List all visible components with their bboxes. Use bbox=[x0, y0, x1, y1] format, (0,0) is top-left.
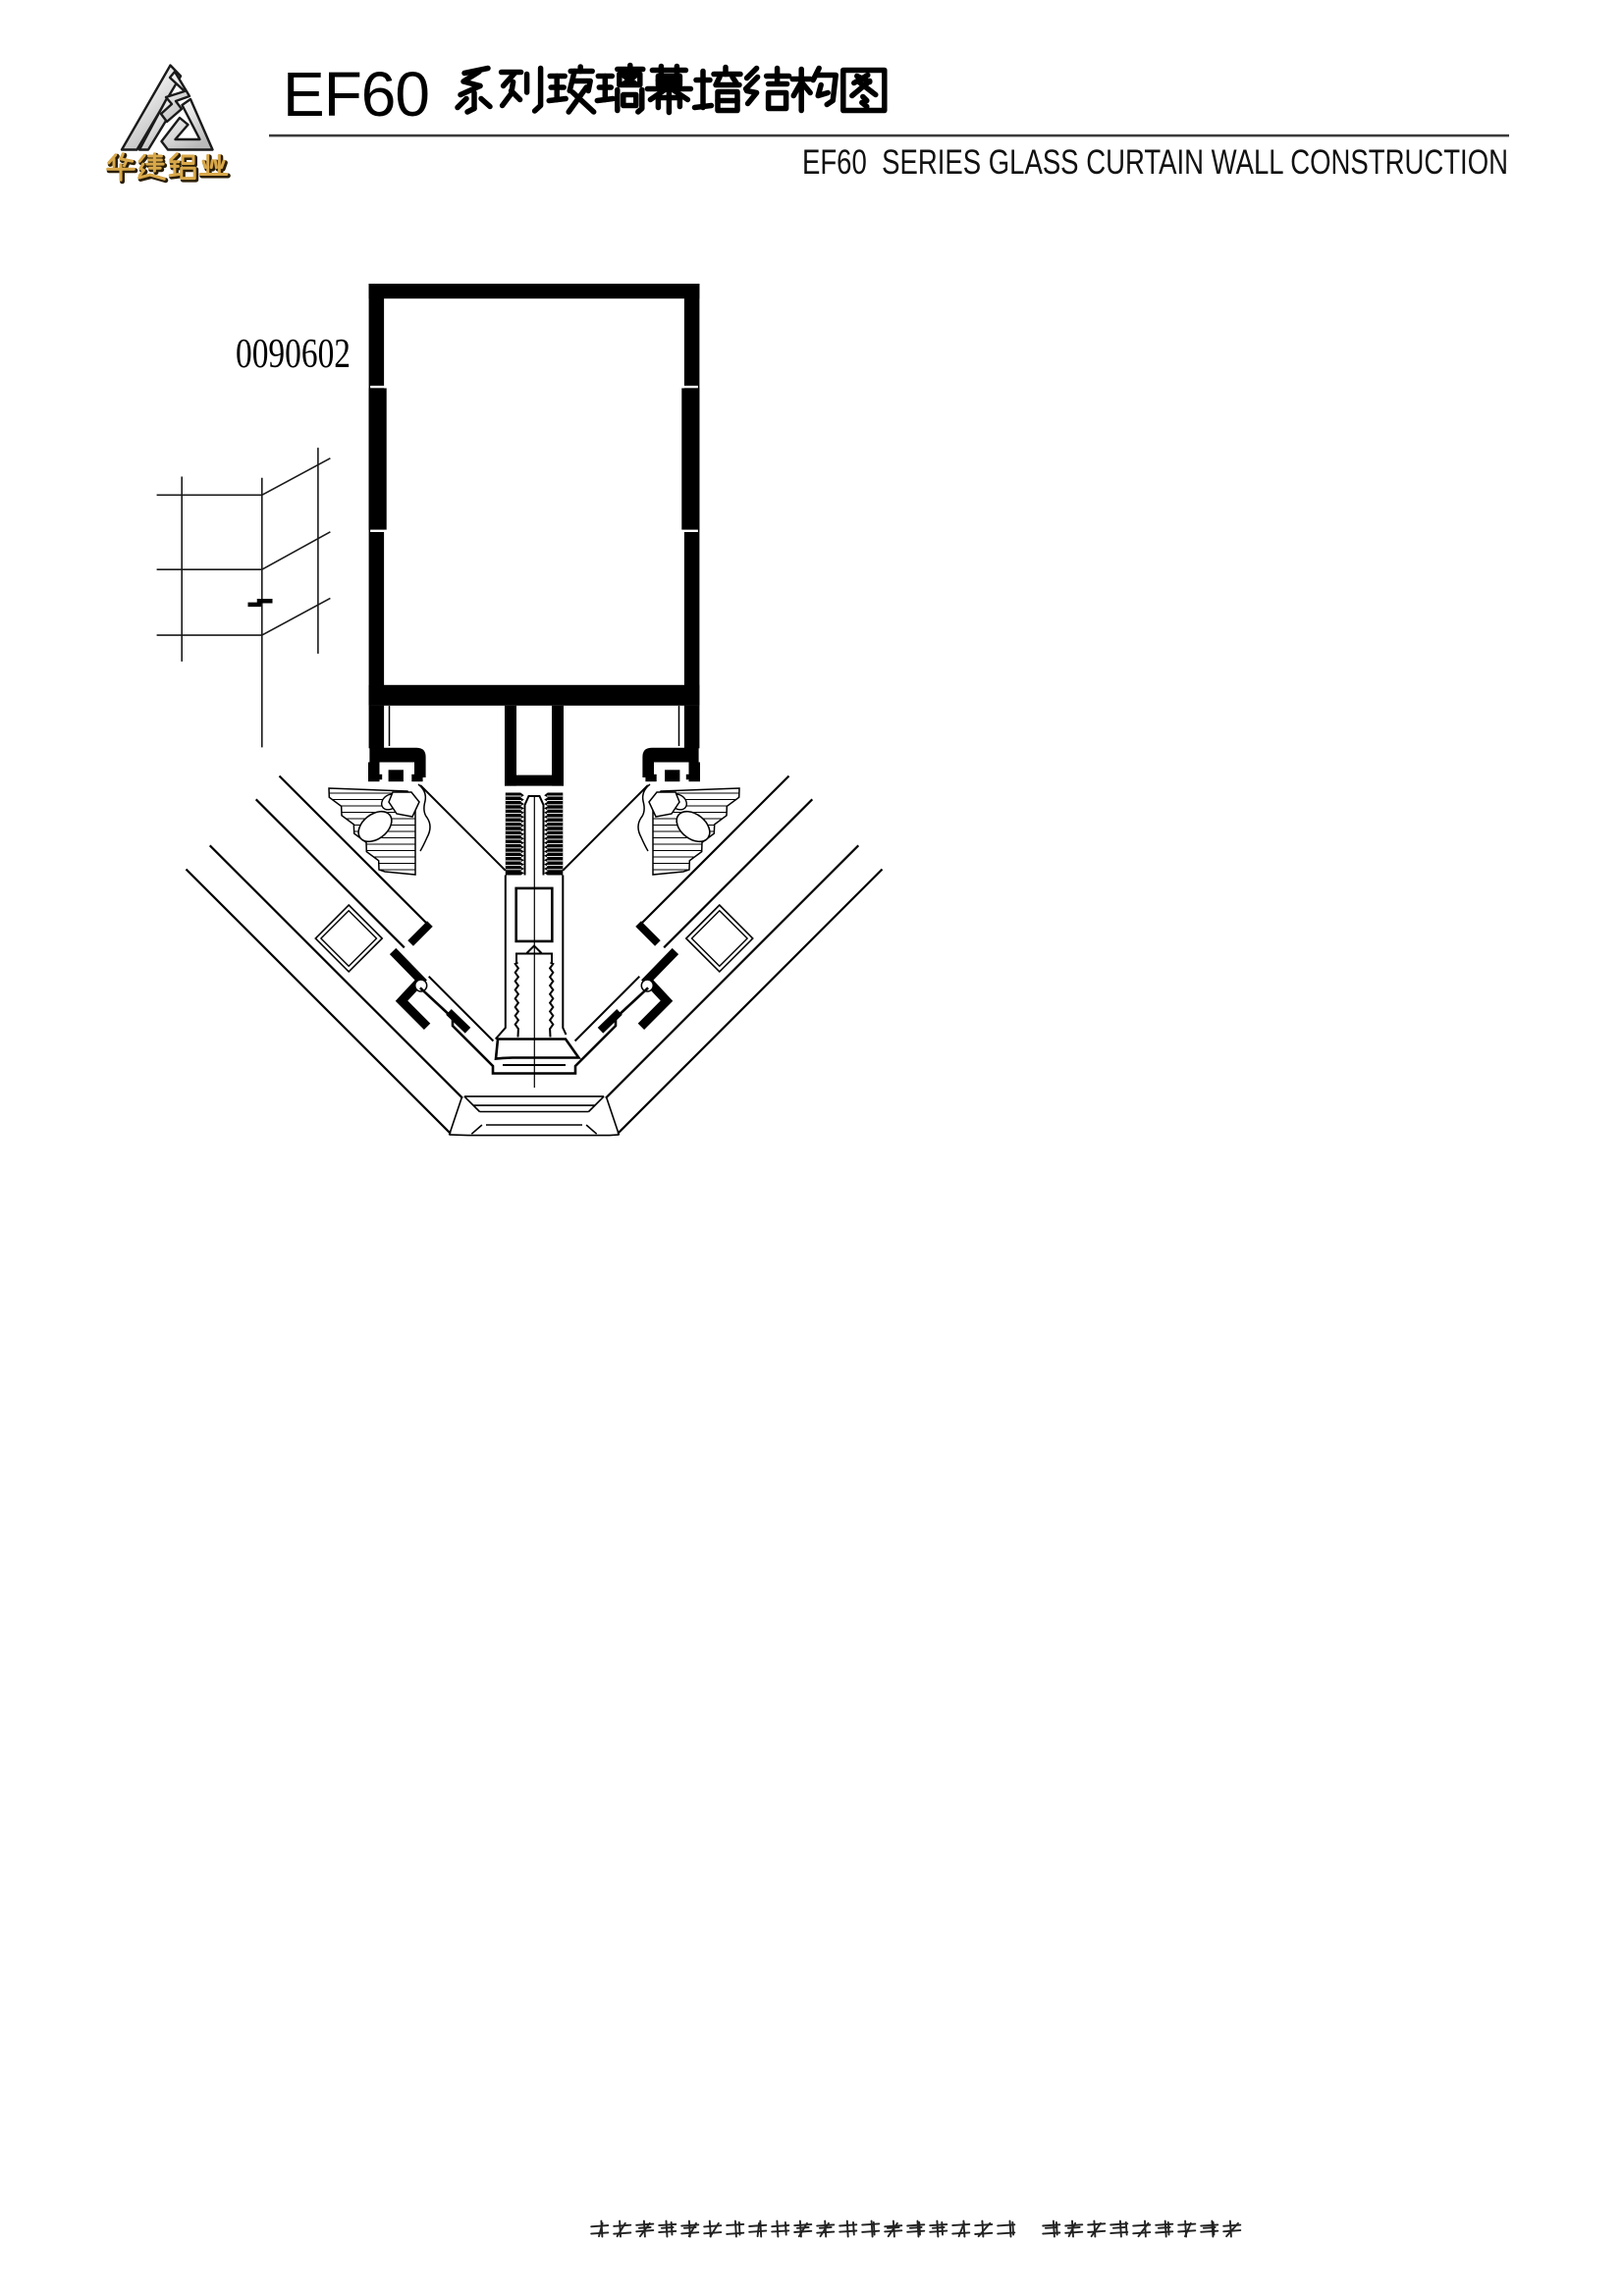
svg-text:EF60: EF60 bbox=[283, 59, 429, 130]
svg-text:EF60 SERIES GLASS CURTAIN WAL: EF60 SERIES GLASS CURTAIN WALL CONSTRUCT… bbox=[802, 143, 1508, 182]
svg-text:0090602: 0090602 bbox=[236, 332, 351, 377]
